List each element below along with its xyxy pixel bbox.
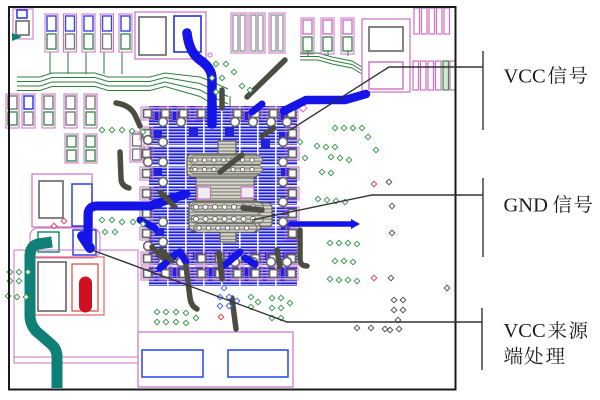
svg-text:VCC: VCC bbox=[504, 66, 546, 88]
svg-text:GND: GND bbox=[504, 195, 548, 217]
svg-text:VCC: VCC bbox=[504, 320, 546, 342]
